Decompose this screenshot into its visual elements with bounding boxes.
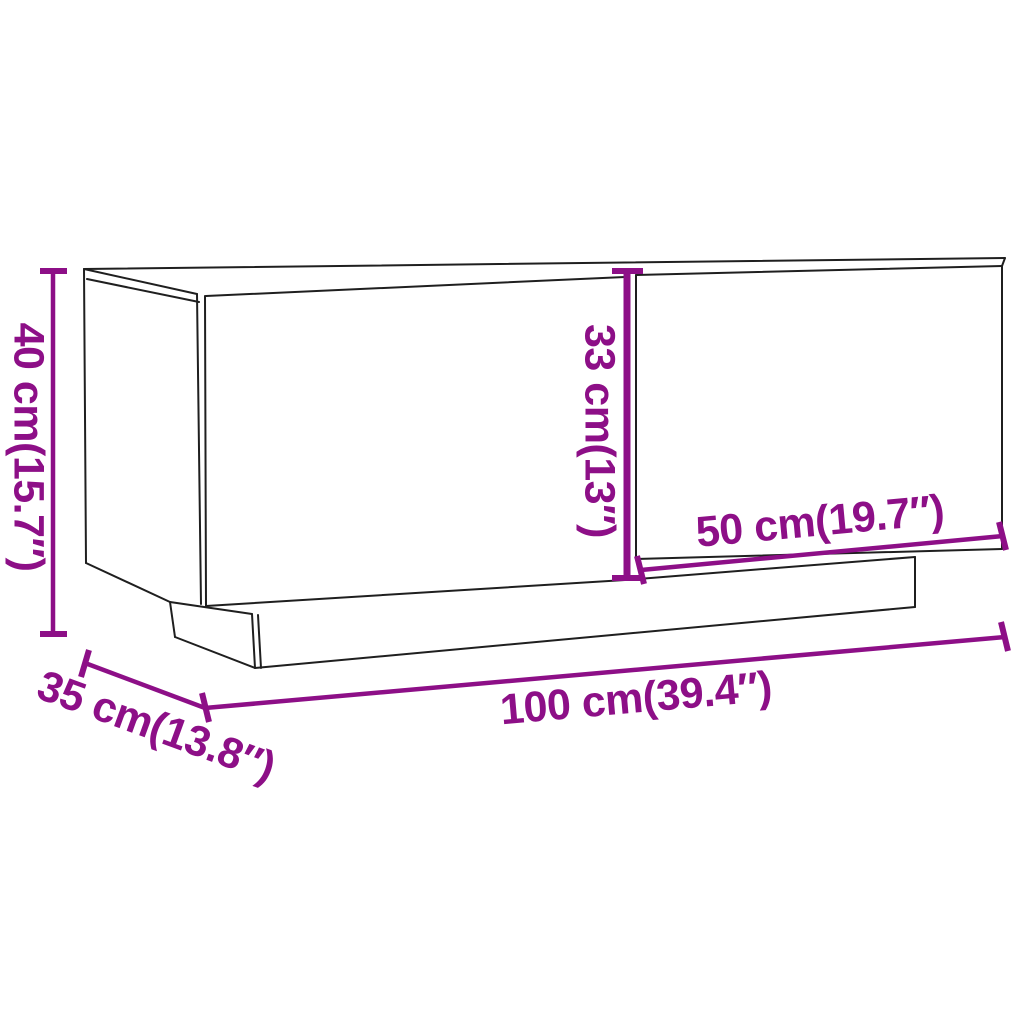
plinth-back-left-edge bbox=[170, 602, 175, 637]
door-width-dimension-tick-right bbox=[999, 522, 1006, 550]
right-door-top-edge bbox=[636, 266, 1002, 275]
dimension-diagram: 40 cm(15.7″) 33 cm(13″) 35 cm(13.8″) 100… bbox=[0, 0, 1024, 1024]
plinth-front-left-edge bbox=[252, 614, 255, 668]
plinth-front-left-inner-edge bbox=[258, 615, 261, 668]
left-door-bottom-edge bbox=[206, 580, 625, 606]
plinth-bottom-left-edge bbox=[175, 637, 255, 668]
side-bottom-edge bbox=[86, 563, 170, 602]
plinth-bottom-edge bbox=[255, 607, 915, 668]
width-dimension-tick-right bbox=[1001, 622, 1008, 651]
left-door-left-edge bbox=[205, 296, 206, 606]
side-back-vertical-edge bbox=[84, 269, 86, 563]
door-height-dimension-label: 33 cm(13″) bbox=[575, 324, 624, 538]
top-right-corner-edge bbox=[1002, 258, 1005, 266]
top-back-edge bbox=[84, 258, 1005, 269]
depth-dimension-tick-left bbox=[81, 650, 89, 677]
left-door-top-edge bbox=[206, 277, 625, 296]
side-front-edge bbox=[197, 294, 201, 604]
height-dimension-label: 40 cm(15.7″) bbox=[4, 323, 53, 572]
cabinet-outline bbox=[84, 258, 1005, 668]
